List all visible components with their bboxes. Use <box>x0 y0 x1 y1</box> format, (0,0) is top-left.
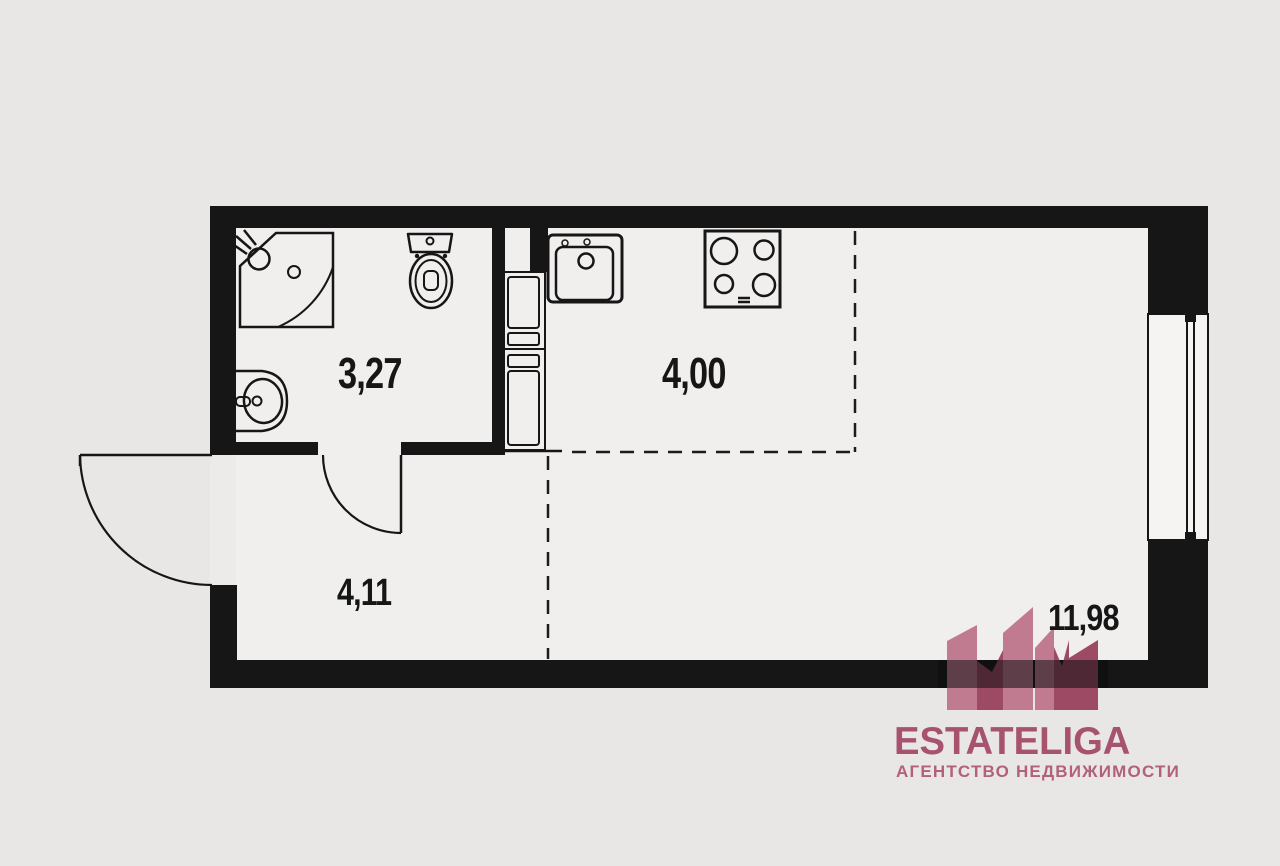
wall-bathroom-bottom-right <box>401 442 505 455</box>
area-label-living: 11,98 <box>1048 600 1119 636</box>
area-label-bathroom: 3,27 <box>338 352 402 396</box>
window-frame-cap <box>1185 532 1196 540</box>
entry-door-opening <box>210 455 236 585</box>
area-label-kitchen: 4,00 <box>662 352 726 396</box>
logo-brand-text: ESTATELIGA <box>894 722 1149 761</box>
area-label-hallway: 4,11 <box>337 574 391 612</box>
closet-icon <box>504 272 545 450</box>
floor-plan-page: 3,27 4,00 4,11 11,98 ESTATELIGA АГЕНТСТВ… <box>0 0 1280 866</box>
toilet-hinge <box>443 254 447 258</box>
logo-tower <box>1003 607 1033 710</box>
entry-door-swing-arc <box>80 455 212 585</box>
window-niche <box>1148 314 1208 540</box>
window-frame-cap <box>1185 314 1196 322</box>
logo-tagline-text: АГЕНТСТВО НЕДВИЖИМОСТИ <box>896 763 1156 780</box>
window <box>1148 314 1208 540</box>
entry-door <box>80 455 212 585</box>
wall-right-lower <box>1148 540 1208 688</box>
toilet-hinge <box>415 254 419 258</box>
wall-bathroom-bottom-left <box>236 442 318 455</box>
wall-right-upper <box>1148 206 1208 314</box>
wall-vent-stub <box>530 228 548 272</box>
logo-wall-overlap-shade <box>938 660 1108 688</box>
wall-top <box>210 206 1208 228</box>
